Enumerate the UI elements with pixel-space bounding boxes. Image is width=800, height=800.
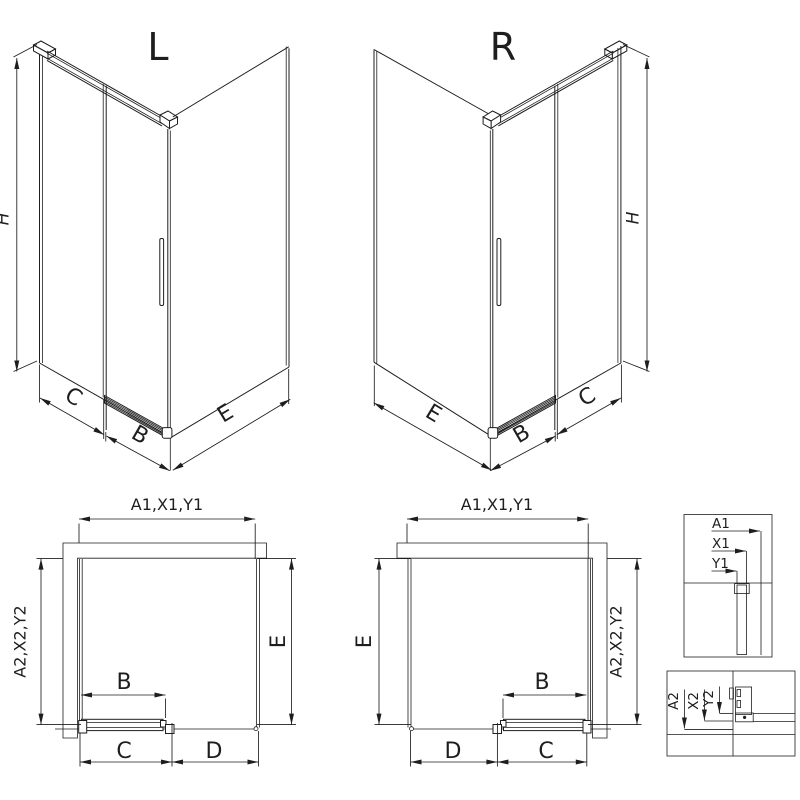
dim-label-b: B [116,670,131,695]
dim-c: C [497,733,586,767]
dim-label-c: C [116,739,131,764]
dim-label-e: E [213,400,238,429]
dim-label-b: B [534,670,549,695]
plan-left-drawing: A1,X1,Y1 A2,X2,Y2 E B C D [11,495,297,767]
iso-right-drawing: R [374,25,650,471]
wall-profile-section [737,585,747,655]
corner-post [490,129,493,471]
dim-e-right: E [374,366,492,471]
dim-h-left: H [0,45,37,372]
dim-label-e: E [421,400,446,429]
door-profile-section [730,687,795,722]
side-panel [171,47,290,438]
dim-label-c: C [574,383,600,412]
detail-ref-y2: Y2 [701,687,733,714]
variant-label-left: L [147,25,168,69]
wall-profile [588,559,591,727]
wall-section [397,543,607,738]
side-panel [374,50,494,438]
dim-width: A1,X1,Y1 [79,495,255,559]
side-glass-panel [257,559,260,728]
door-handle [497,239,501,306]
dim-width: A1,X1,Y1 [407,495,588,559]
sliding-door-plan [493,719,591,733]
dim-b: B [81,670,166,718]
ref-label-x1: X1 [712,536,730,552]
dim-e-left: E [173,369,290,470]
sliding-door-plan [79,719,174,733]
variant-label-right: R [490,25,516,69]
dim-label-width: A1,X1,Y1 [131,495,203,514]
plan-right-drawing: A1,X1,Y1 E A2,X2,Y2 B D C [352,495,642,767]
dim-label-b: B [127,421,153,450]
front-fixed-panel [491,46,621,437]
detail-ref-x1: X1 [712,536,747,552]
dim-label-h: H [0,212,14,225]
ref-label-x2: X2 [686,692,702,710]
corner-post [168,129,171,471]
dim-label-side: E [266,635,290,648]
dim-d: D [411,723,498,767]
technical-drawing-page: L [0,0,800,800]
detail-ref-y1: Y1 [711,556,737,572]
corner-dot [254,727,258,731]
ref-label-y1: Y1 [711,556,729,572]
dim-depth: A2,X2,Y2 [11,559,82,725]
dim-d: D [172,731,259,767]
dim-label-d: D [445,739,462,764]
dim-label-side: E [352,635,376,648]
detail-ref-a1: A1 [712,516,761,532]
dim-side: E [257,559,296,725]
wall-section [63,543,267,738]
front-fixed-panel [40,46,171,437]
dim-label-b: B [509,420,535,449]
track-lines [753,713,795,721]
ref-label-a2: A2 [666,692,682,710]
dim-side: E [352,559,411,725]
dim-label-width: A1,X1,Y1 [461,495,533,514]
rail-corner-cap [160,111,178,129]
sliding-door-panel [497,84,558,430]
dim-c-right: C [557,365,622,440]
dim-b: B [503,670,586,718]
ref-label-a1: A1 [712,516,730,532]
ref-label-y2: Y2 [701,690,717,708]
iso-left-drawing: L [0,25,290,471]
dim-c-left: C [40,365,105,440]
dim-label-h: H [624,211,644,224]
side-glass-panel [408,559,411,728]
dim-h-right: H [623,45,650,372]
detail-bottom-box: A2 X2 Y2 [666,671,795,756]
dim-label-depth: A2,X2,Y2 [607,605,626,677]
dim-depth: A2,X2,Y2 [588,559,642,725]
dim-label-depth: A2,X2,Y2 [11,605,30,677]
sliding-door-panel [103,84,163,430]
door-handle [160,239,164,306]
rail-corner-cap [483,111,501,129]
top-rail [47,51,162,126]
door-wall-cap [583,721,591,734]
shower-enclosure-diagram: L [0,0,800,800]
track-end-cap [162,428,172,439]
dim-label-c: C [538,739,553,764]
dim-label-c: C [60,383,86,412]
detail-top-box: A1 X1 Y1 [684,515,772,658]
door-end-cap [166,725,175,734]
track-end-cap [488,428,498,439]
door-wall-cap [79,721,87,734]
corner-dot [410,727,414,731]
wall-profile [80,559,83,727]
dim-label-d: D [206,739,223,764]
